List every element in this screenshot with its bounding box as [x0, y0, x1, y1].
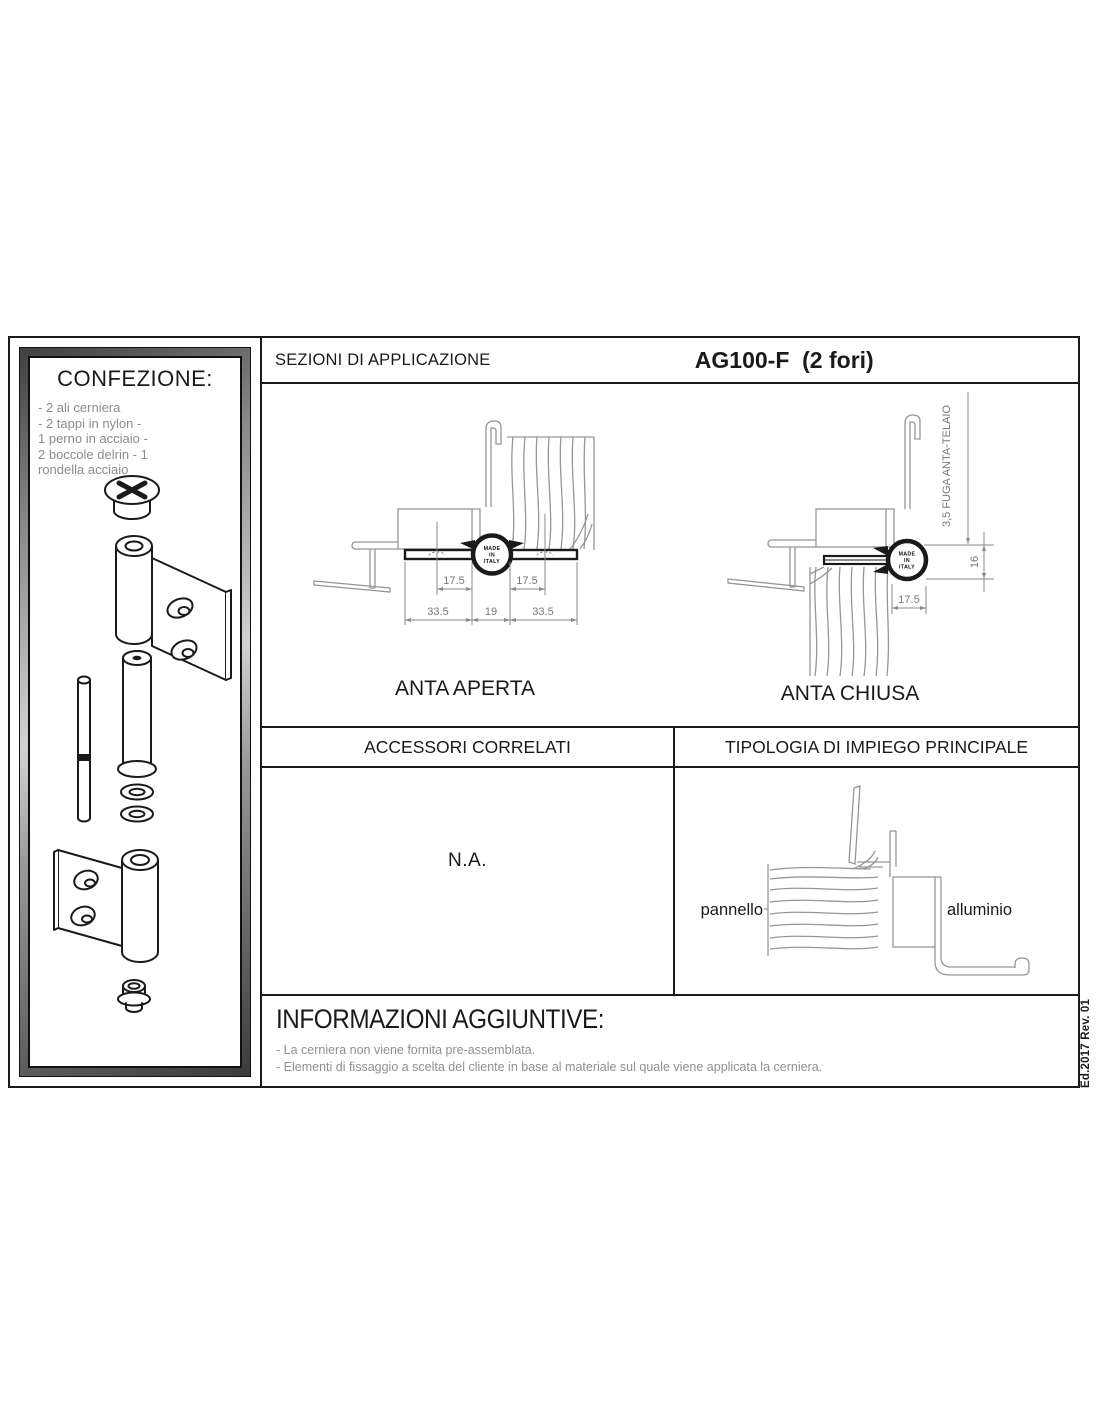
sub-section-headers: ACCESSORI CORRELATI TIPOLOGIA DI IMPIEGO…	[262, 728, 1078, 768]
dim-16: 16	[969, 556, 981, 568]
made-in-italy-mark: ITALY	[484, 559, 500, 565]
dim-19: 19	[485, 606, 497, 618]
dim-17-5-right: 17.5	[516, 575, 537, 587]
edition-label: Ed.2017 Rev. 01	[1080, 982, 1097, 1088]
hinge-cap-bottom-part	[118, 980, 150, 1012]
made-in-italy-mark: IN	[489, 553, 495, 559]
section-title: SEZIONI DI APPLICAZIONE	[262, 351, 490, 370]
washers-part	[121, 785, 153, 822]
frame-profile	[314, 421, 501, 592]
anta-chiusa-caption: ANTA CHIUSA	[781, 682, 919, 705]
confezione-inner: CONFEZIONE: - 2 ali cerniera - 2 tappi i…	[28, 356, 242, 1068]
informazioni-title: INFORMAZIONI AGGIUNTIVE:	[276, 1004, 998, 1035]
tipologia-drawing: pannello alluminio	[675, 774, 1080, 989]
hinge-bushing-part	[118, 651, 156, 777]
confezione-line: - 2 tappi in nylon -	[38, 416, 240, 432]
informazioni-note: - La cerniera non viene fornita pre-asse…	[276, 1042, 1078, 1059]
confezione-line: - 2 ali cerniera	[38, 400, 240, 416]
accessori-value: N.A.	[262, 850, 673, 872]
anta-aperta-drawing: MADE IN ITALY 17.5 17.5 33.5 19 33.	[300, 392, 640, 727]
confezione-line: 2 boccole delrin - 1	[38, 447, 240, 463]
confezione-panel: CONFEZIONE: - 2 ali cerniera - 2 tappi i…	[10, 338, 262, 1086]
confezione-line: 1 perno in acciaio -	[38, 431, 240, 447]
right-area: SEZIONI DI APPLICAZIONE AG100-F (2 fori)	[262, 338, 1078, 1086]
sections-drawings-band: MADE IN ITALY 17.5 17.5 33.5 19 33.	[262, 384, 1078, 728]
metal-frame: CONFEZIONE: - 2 ali cerniera - 2 tappi i…	[19, 347, 251, 1077]
accessori-title: ACCESSORI CORRELATI	[262, 728, 675, 766]
hinge-cap-top-part	[105, 476, 159, 519]
pannello-label: pannello	[701, 901, 763, 919]
hinge-pin-part	[77, 677, 91, 822]
anta-aperta-caption: ANTA APERTA	[395, 677, 535, 700]
made-in-italy-mark: MADE	[484, 546, 501, 552]
hinge-exploded-drawing	[30, 466, 242, 1036]
header-band: SEZIONI DI APPLICAZIONE AG100-F (2 fori)	[262, 338, 1078, 384]
confezione-title: CONFEZIONE:	[30, 366, 240, 392]
informazioni-notes: - La cerniera non viene fornita pre-asse…	[276, 1042, 1078, 1076]
dim-17-5: 17.5	[898, 594, 919, 606]
aluminium-profile	[849, 786, 1029, 975]
tipologia-cell: pannello alluminio	[675, 768, 1078, 994]
hinge-wing-lower-part	[54, 850, 158, 962]
informazioni-note: - Elementi di fissaggio a scelta del cli…	[276, 1059, 1078, 1076]
accessori-cell: N.A.	[262, 768, 675, 994]
anta-chiusa-drawing: MADE IN ITALY 3,5 FUGA ANTA-TELAIO 16 17…	[698, 384, 1088, 726]
informazioni-band: INFORMAZIONI AGGIUNTIVE: - La cerniera n…	[262, 996, 1078, 1076]
sub-section-content: N.A. p	[262, 768, 1078, 996]
made-in-italy-mark: MADE	[899, 552, 916, 558]
datasheet-page: { "colors": {"line_gray": "#969696", "di…	[0, 0, 1100, 1422]
dim-33-5-left: 33.5	[427, 606, 448, 618]
product-code: AG100-F (2 fori)	[490, 347, 1078, 374]
wood-panel	[507, 437, 594, 550]
dim-17-5-left: 17.5	[443, 575, 464, 587]
sheet-frame: CONFEZIONE: - 2 ali cerniera - 2 tappi i…	[8, 336, 1080, 1088]
dim-33-5-right: 33.5	[532, 606, 553, 618]
alluminio-label: alluminio	[947, 901, 1012, 919]
made-in-italy-mark: ITALY	[899, 565, 915, 571]
made-in-italy-mark: IN	[904, 558, 910, 564]
wood-panel	[810, 567, 888, 676]
fuga-anta-telaio-label: 3,5 FUGA ANTA-TELAIO	[941, 405, 953, 527]
tipologia-title: TIPOLOGIA DI IMPIEGO PRINCIPALE	[675, 728, 1078, 766]
